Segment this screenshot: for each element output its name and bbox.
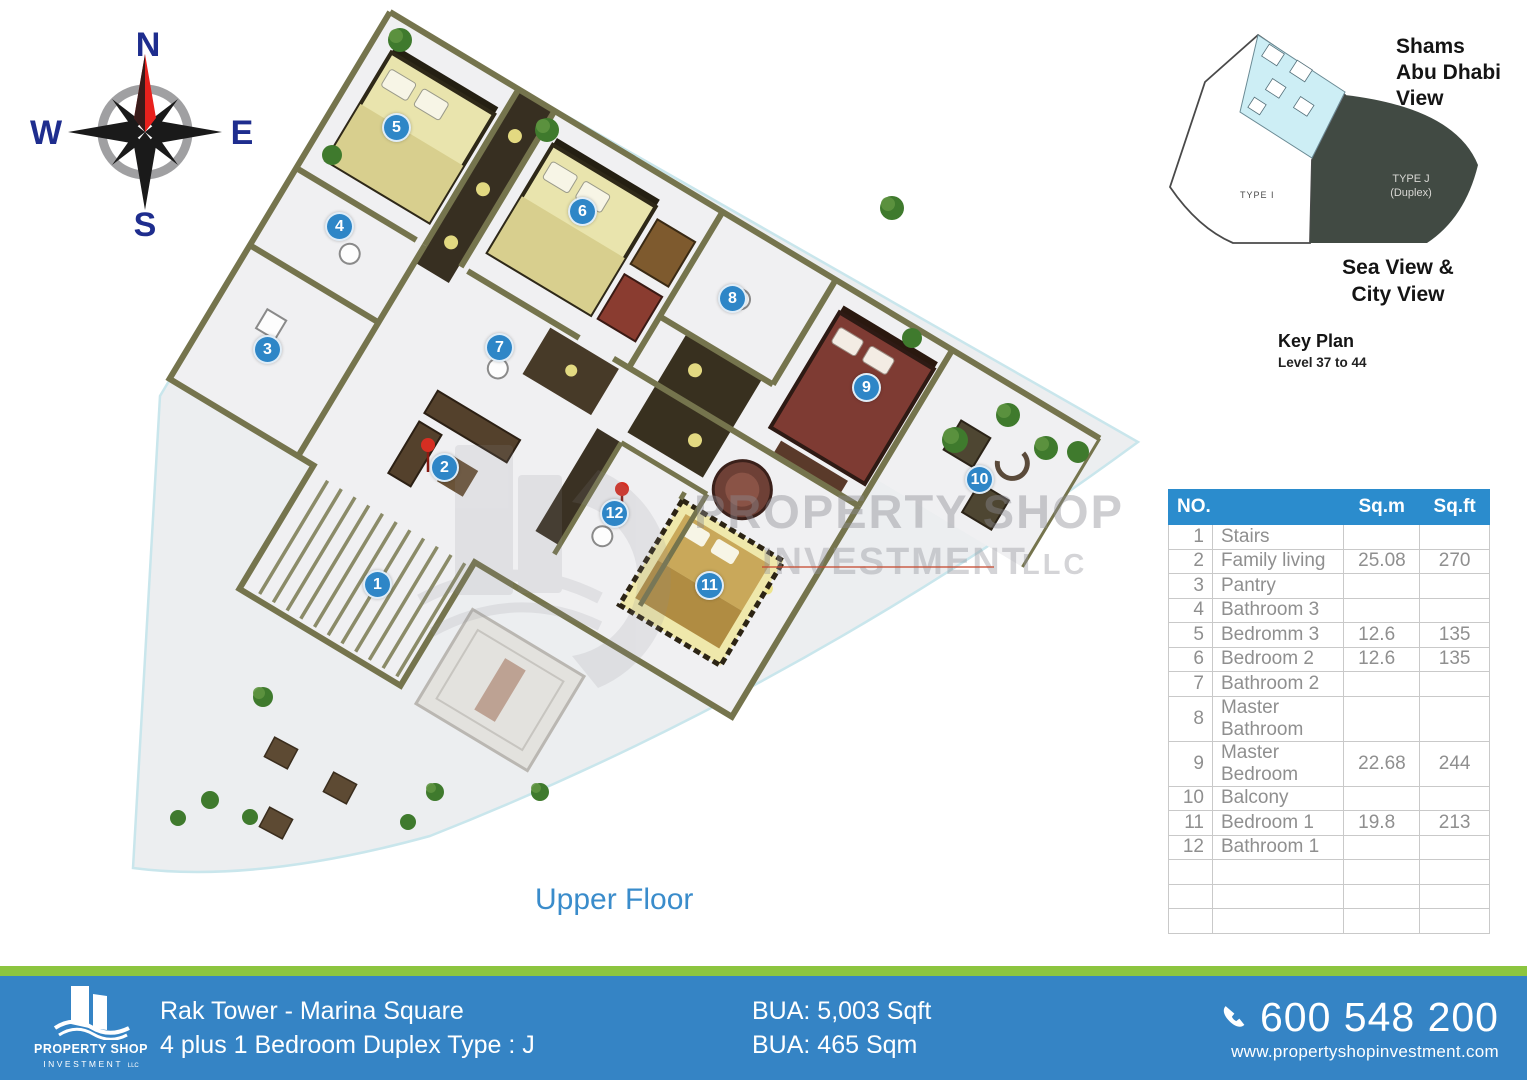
property-shop-logo-icon bbox=[43, 982, 139, 1040]
table-cell bbox=[1420, 835, 1490, 860]
footer-green-strip bbox=[0, 966, 1527, 976]
plan-marker-2: 2 bbox=[430, 453, 459, 482]
unit-type: 4 plus 1 Bedroom Duplex Type : J bbox=[160, 1028, 535, 1062]
table-cell bbox=[1420, 525, 1490, 550]
table-cell: Family living bbox=[1212, 549, 1343, 574]
table-cell bbox=[1420, 884, 1490, 909]
table-cell: 5 bbox=[1169, 623, 1213, 648]
project-name: Rak Tower - Marina Square bbox=[160, 994, 535, 1028]
table-cell bbox=[1344, 525, 1420, 550]
phone-number: 600 548 200 bbox=[1260, 994, 1499, 1041]
brochure-page: PROPERTY SHOP INVESTMENT LLC 12345678910… bbox=[0, 0, 1527, 1080]
table-cell: 10 bbox=[1169, 786, 1213, 811]
table-row bbox=[1169, 909, 1490, 934]
watermark-text-2: INVESTMENT bbox=[762, 541, 1027, 584]
table-cell bbox=[1212, 909, 1343, 934]
plan-marker-9: 9 bbox=[852, 373, 881, 402]
table-row: 12Bathroom 1 bbox=[1169, 835, 1490, 860]
table-cell: 1 bbox=[1169, 525, 1213, 550]
footer-website: www.propertyshopinvestment.com bbox=[1220, 1042, 1499, 1062]
table-row: 2Family living25.08270 bbox=[1169, 549, 1490, 574]
table-cell: Bedromm 3 bbox=[1212, 623, 1343, 648]
compass-letter-n: N bbox=[136, 26, 161, 64]
footer-logo-sub: INVESTMENT LLC bbox=[25, 1059, 157, 1069]
table-row: 4Bathroom 3 bbox=[1169, 598, 1490, 623]
table-cell: 270 bbox=[1420, 549, 1490, 574]
compass-letter-e: E bbox=[231, 114, 254, 152]
plan-marker-8: 8 bbox=[718, 284, 747, 313]
table-row: 9Master Bedroom22.68244 bbox=[1169, 741, 1490, 786]
watermark-underline bbox=[762, 566, 994, 568]
table-row bbox=[1169, 860, 1490, 885]
table-cell bbox=[1420, 672, 1490, 697]
table-cell: 6 bbox=[1169, 647, 1213, 672]
plan-marker-5: 5 bbox=[382, 113, 411, 142]
plan-marker-11: 11 bbox=[695, 571, 724, 600]
table-cell bbox=[1344, 860, 1420, 885]
table-cell bbox=[1420, 696, 1490, 741]
table-cell bbox=[1344, 598, 1420, 623]
table-cell: Master Bedroom bbox=[1212, 741, 1343, 786]
floor-label: Upper Floor bbox=[535, 883, 693, 917]
table-cell bbox=[1344, 884, 1420, 909]
table-cell: 11 bbox=[1169, 811, 1213, 836]
table-cell: 3 bbox=[1169, 574, 1213, 599]
table-row: 6Bedroom 212.6135 bbox=[1169, 647, 1490, 672]
footer-logo-investment: INVESTMENT bbox=[43, 1059, 123, 1069]
table-cell bbox=[1420, 860, 1490, 885]
plan-marker-10: 10 bbox=[965, 465, 994, 494]
key-plan-title: Key Plan bbox=[1278, 331, 1354, 352]
table-cell: 19.8 bbox=[1344, 811, 1420, 836]
table-cell: 9 bbox=[1169, 741, 1213, 786]
key-plan-type-j-wedge bbox=[1310, 95, 1478, 243]
phone-icon bbox=[1220, 1003, 1250, 1033]
table-row: 1Stairs bbox=[1169, 525, 1490, 550]
table-cell bbox=[1344, 574, 1420, 599]
footer-logo-llc: LLC bbox=[128, 1063, 139, 1069]
table-cell bbox=[1169, 909, 1213, 934]
key-plan-view-top-label: Shams Abu Dhabi View bbox=[1396, 34, 1527, 112]
plan-marker-12: 12 bbox=[600, 499, 629, 528]
bua-sqft: BUA: 5,003 Sqft bbox=[752, 994, 931, 1028]
table-cell bbox=[1344, 672, 1420, 697]
table-row: 5Bedromm 312.6135 bbox=[1169, 623, 1490, 648]
table-cell: Bathroom 3 bbox=[1212, 598, 1343, 623]
table-row: 8Master Bathroom bbox=[1169, 696, 1490, 741]
table-header-sqm: Sq.m bbox=[1344, 490, 1420, 525]
plan-marker-1: 1 bbox=[363, 570, 392, 599]
table-cell: 25.08 bbox=[1344, 549, 1420, 574]
plan-marker-6: 6 bbox=[568, 197, 597, 226]
compass-letter-w: W bbox=[30, 114, 63, 152]
table-cell: Balcony bbox=[1212, 786, 1343, 811]
table-row: 7Bathroom 2 bbox=[1169, 672, 1490, 697]
table-cell bbox=[1420, 574, 1490, 599]
table-cell: Master Bathroom bbox=[1212, 696, 1343, 741]
room-area-table: NO. Sq.m Sq.ft 1Stairs2Family living25.0… bbox=[1168, 489, 1490, 934]
plan-marker-3: 3 bbox=[253, 335, 282, 364]
table-cell: Bathroom 2 bbox=[1212, 672, 1343, 697]
table-cell bbox=[1344, 696, 1420, 741]
key-plan-view-bottom-label: Sea View & City View bbox=[1318, 254, 1478, 308]
plan-marker-7: 7 bbox=[485, 333, 514, 362]
compass-rose: N S W E bbox=[20, 10, 270, 240]
table-cell bbox=[1420, 786, 1490, 811]
plan-marker-4: 4 bbox=[325, 212, 354, 241]
footer-project-block: Rak Tower - Marina Square 4 plus 1 Bedro… bbox=[160, 994, 535, 1062]
key-plan-subtitle: Level 37 to 44 bbox=[1278, 355, 1367, 370]
key-plan-type-i-label: TYPE I bbox=[1240, 190, 1275, 200]
table-row: 11Bedroom 119.8213 bbox=[1169, 811, 1490, 836]
compass-letter-s: S bbox=[134, 206, 157, 240]
table-cell: 213 bbox=[1420, 811, 1490, 836]
table-row bbox=[1169, 884, 1490, 909]
table-cell bbox=[1420, 598, 1490, 623]
table-cell bbox=[1420, 909, 1490, 934]
table-cell: 12.6 bbox=[1344, 647, 1420, 672]
footer-phone: 600 548 200 bbox=[1220, 994, 1499, 1041]
table-cell: Bedroom 2 bbox=[1212, 647, 1343, 672]
watermark-text-3: LLC bbox=[1022, 549, 1087, 582]
table-cell: 135 bbox=[1420, 647, 1490, 672]
table-cell bbox=[1344, 786, 1420, 811]
key-plan-type-j-label: TYPE J (Duplex) bbox=[1356, 172, 1466, 200]
table-cell bbox=[1344, 835, 1420, 860]
table-header-sqft: Sq.ft bbox=[1420, 490, 1490, 525]
table-cell: 4 bbox=[1169, 598, 1213, 623]
table-cell bbox=[1212, 884, 1343, 909]
table-cell: Stairs bbox=[1212, 525, 1343, 550]
table-cell: 12.6 bbox=[1344, 623, 1420, 648]
bua-sqm: BUA: 465 Sqm bbox=[752, 1028, 931, 1062]
table-cell: 22.68 bbox=[1344, 741, 1420, 786]
table-cell: 2 bbox=[1169, 549, 1213, 574]
table-header-no: NO. bbox=[1169, 490, 1344, 525]
footer-bua-block: BUA: 5,003 Sqft BUA: 465 Sqm bbox=[752, 994, 931, 1062]
table-cell bbox=[1212, 860, 1343, 885]
table-cell: 244 bbox=[1420, 741, 1490, 786]
table-row: 10Balcony bbox=[1169, 786, 1490, 811]
footer-logo: PROPERTY SHOP INVESTMENT LLC bbox=[25, 982, 157, 1069]
table-cell: Pantry bbox=[1212, 574, 1343, 599]
table-row: 3Pantry bbox=[1169, 574, 1490, 599]
table-cell bbox=[1344, 909, 1420, 934]
footer-contact-block: 600 548 200 www.propertyshopinvestment.c… bbox=[1220, 994, 1499, 1062]
footer-logo-name: PROPERTY SHOP bbox=[25, 1042, 157, 1056]
table-cell: 8 bbox=[1169, 696, 1213, 741]
table-cell bbox=[1169, 884, 1213, 909]
table-cell: 12 bbox=[1169, 835, 1213, 860]
table-cell bbox=[1169, 860, 1213, 885]
watermark-text-1: PROPERTY SHOP bbox=[694, 484, 1124, 539]
table-cell: Bedroom 1 bbox=[1212, 811, 1343, 836]
table-cell: Bathroom 1 bbox=[1212, 835, 1343, 860]
table-cell: 7 bbox=[1169, 672, 1213, 697]
table-cell: 135 bbox=[1420, 623, 1490, 648]
